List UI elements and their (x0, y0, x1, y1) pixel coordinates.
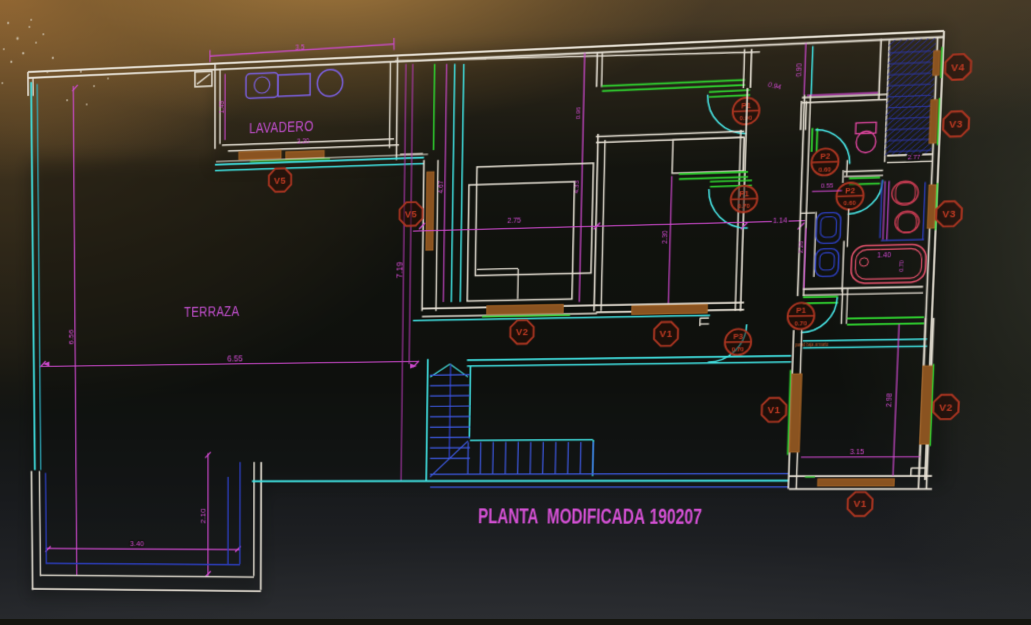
svg-text:LAVADERO: LAVADERO (249, 117, 314, 137)
svg-text:V3: V3 (942, 208, 956, 220)
svg-text:P2: P2 (820, 151, 830, 161)
svg-text:PLANTA MODIFICADA 190207: PLANTA MODIFICADA 190207 (478, 504, 702, 528)
svg-text:TERRAZA: TERRAZA (184, 302, 240, 320)
svg-text:V4: V4 (951, 61, 966, 73)
svg-text:P2: P2 (845, 185, 855, 195)
svg-text:2.75: 2.75 (507, 217, 521, 225)
svg-text:0.60: 0.60 (818, 167, 831, 174)
svg-text:4.67: 4.67 (438, 180, 445, 194)
svg-text:0.70: 0.70 (737, 204, 750, 211)
svg-text:P1: P1 (796, 306, 806, 316)
svg-text:6.55: 6.55 (227, 354, 243, 363)
svg-text:V2: V2 (939, 402, 953, 413)
svg-text:0.70: 0.70 (898, 260, 905, 272)
svg-text:V3: V3 (949, 118, 963, 130)
svg-text:V1: V1 (767, 405, 781, 416)
svg-text:3.40: 3.40 (130, 539, 144, 548)
svg-text:0.70: 0.70 (794, 321, 807, 328)
svg-text:1.40: 1.40 (877, 251, 892, 259)
svg-text:2.30: 2.30 (661, 230, 669, 244)
svg-text:V2: V2 (516, 327, 529, 338)
svg-text:2.77: 2.77 (907, 154, 920, 161)
svg-text:6.56: 6.56 (66, 329, 75, 344)
svg-text:2.98: 2.98 (886, 393, 894, 408)
svg-text:pared baja armario: pared baja armario (795, 341, 829, 348)
svg-text:V5: V5 (405, 209, 418, 220)
svg-text:3.20: 3.20 (297, 138, 310, 146)
svg-text:0.55: 0.55 (821, 183, 834, 190)
svg-text:2.10: 2.10 (198, 508, 207, 523)
svg-text:0.70: 0.70 (731, 347, 743, 354)
svg-text:7.19: 7.19 (395, 261, 404, 278)
svg-text:P3: P3 (733, 332, 743, 342)
svg-text:V1: V1 (853, 499, 867, 510)
svg-text:0.96: 0.96 (576, 107, 583, 120)
svg-text:V1: V1 (659, 329, 672, 340)
svg-text:1.14: 1.14 (773, 217, 788, 225)
svg-text:0.60: 0.60 (843, 201, 856, 208)
svg-text:P1: P1 (739, 189, 749, 199)
svg-text:1.49: 1.49 (219, 100, 226, 114)
svg-text:0.90: 0.90 (796, 63, 804, 78)
svg-text:3.15: 3.15 (850, 449, 865, 457)
svg-text:V5: V5 (274, 175, 286, 186)
svg-text:3.5: 3.5 (295, 44, 305, 52)
svg-text:2.26: 2.26 (798, 241, 805, 254)
